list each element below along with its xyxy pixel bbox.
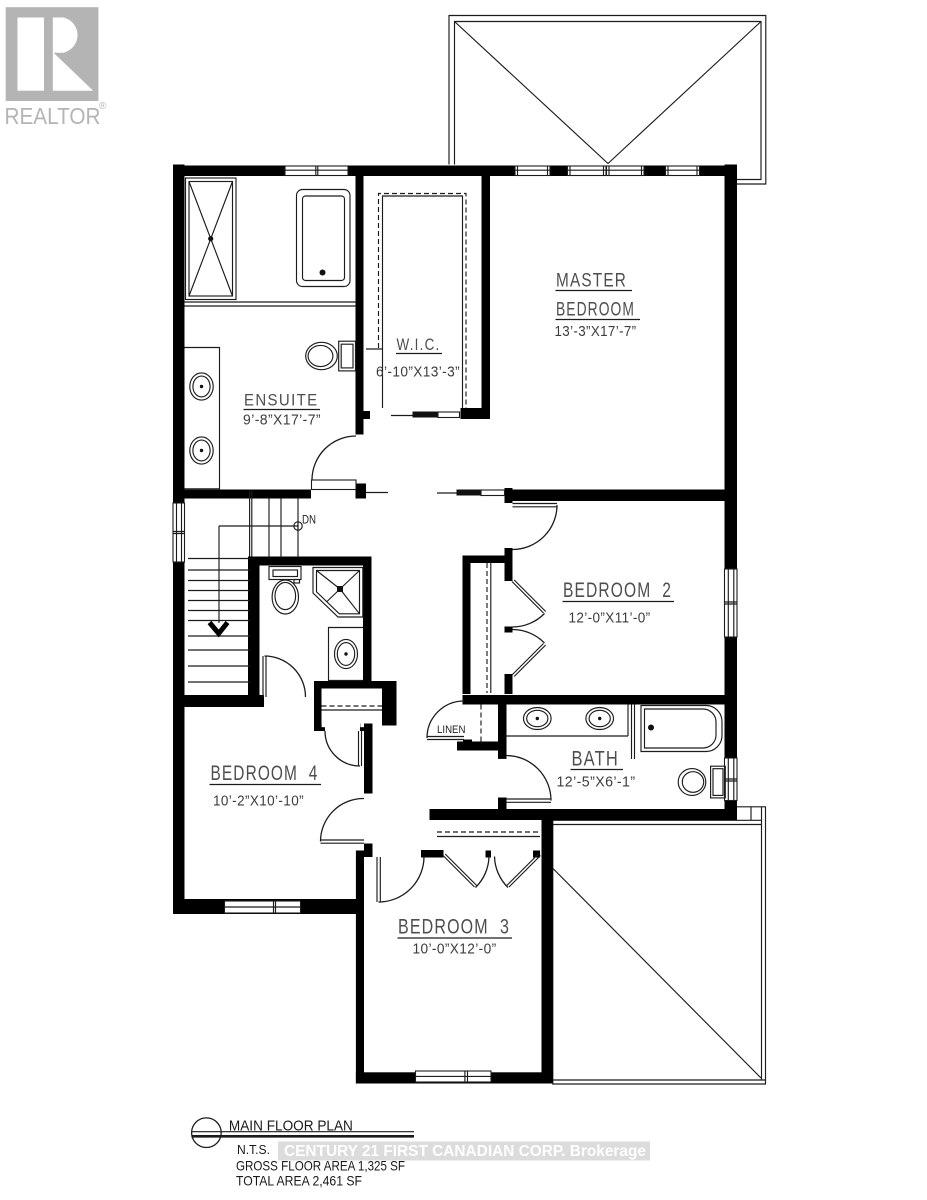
svg-text:CENTURY 21 FIRST CANADIAN CORP: CENTURY 21 FIRST CANADIAN CORP. Brokerag…	[284, 1143, 646, 1160]
svg-text:®: ®	[99, 101, 107, 112]
svg-text:N.T.S.: N.T.S.	[237, 1143, 270, 1157]
svg-text:DN: DN	[302, 515, 316, 527]
svg-text:BEDROOM 3: BEDROOM 3	[398, 916, 510, 939]
svg-text:BATH: BATH	[572, 748, 620, 771]
svg-text:BEDROOM: BEDROOM	[556, 299, 635, 321]
svg-text:10’-0”X12’-0”: 10’-0”X12’-0”	[413, 942, 497, 958]
svg-text:REALTOR: REALTOR	[5, 103, 101, 129]
svg-text:10’-2”X10’-10”: 10’-2”X10’-10”	[213, 794, 304, 810]
svg-text:ENSUITE: ENSUITE	[244, 392, 319, 410]
svg-text:W.I.C.: W.I.C.	[397, 336, 441, 354]
svg-text:LINEN: LINEN	[437, 724, 466, 736]
svg-text:BEDROOM 2: BEDROOM 2	[563, 579, 672, 602]
svg-text:BEDROOM 4: BEDROOM 4	[211, 762, 319, 785]
svg-text:MASTER: MASTER	[556, 270, 627, 292]
svg-text:13’-3”X17’-7”: 13’-3”X17’-7”	[555, 324, 637, 340]
svg-text:12’-0”X11’-0”: 12’-0”X11’-0”	[569, 611, 651, 627]
svg-text:TOTAL AREA 2,461 SF: TOTAL AREA 2,461 SF	[236, 1173, 362, 1189]
svg-text:12’-5”X6’-1”: 12’-5”X6’-1”	[557, 775, 636, 791]
svg-text:9’-8”X17’-7”: 9’-8”X17’-7”	[243, 413, 321, 429]
svg-text:6’-10”X13’-3”: 6’-10”X13’-3”	[376, 365, 460, 381]
